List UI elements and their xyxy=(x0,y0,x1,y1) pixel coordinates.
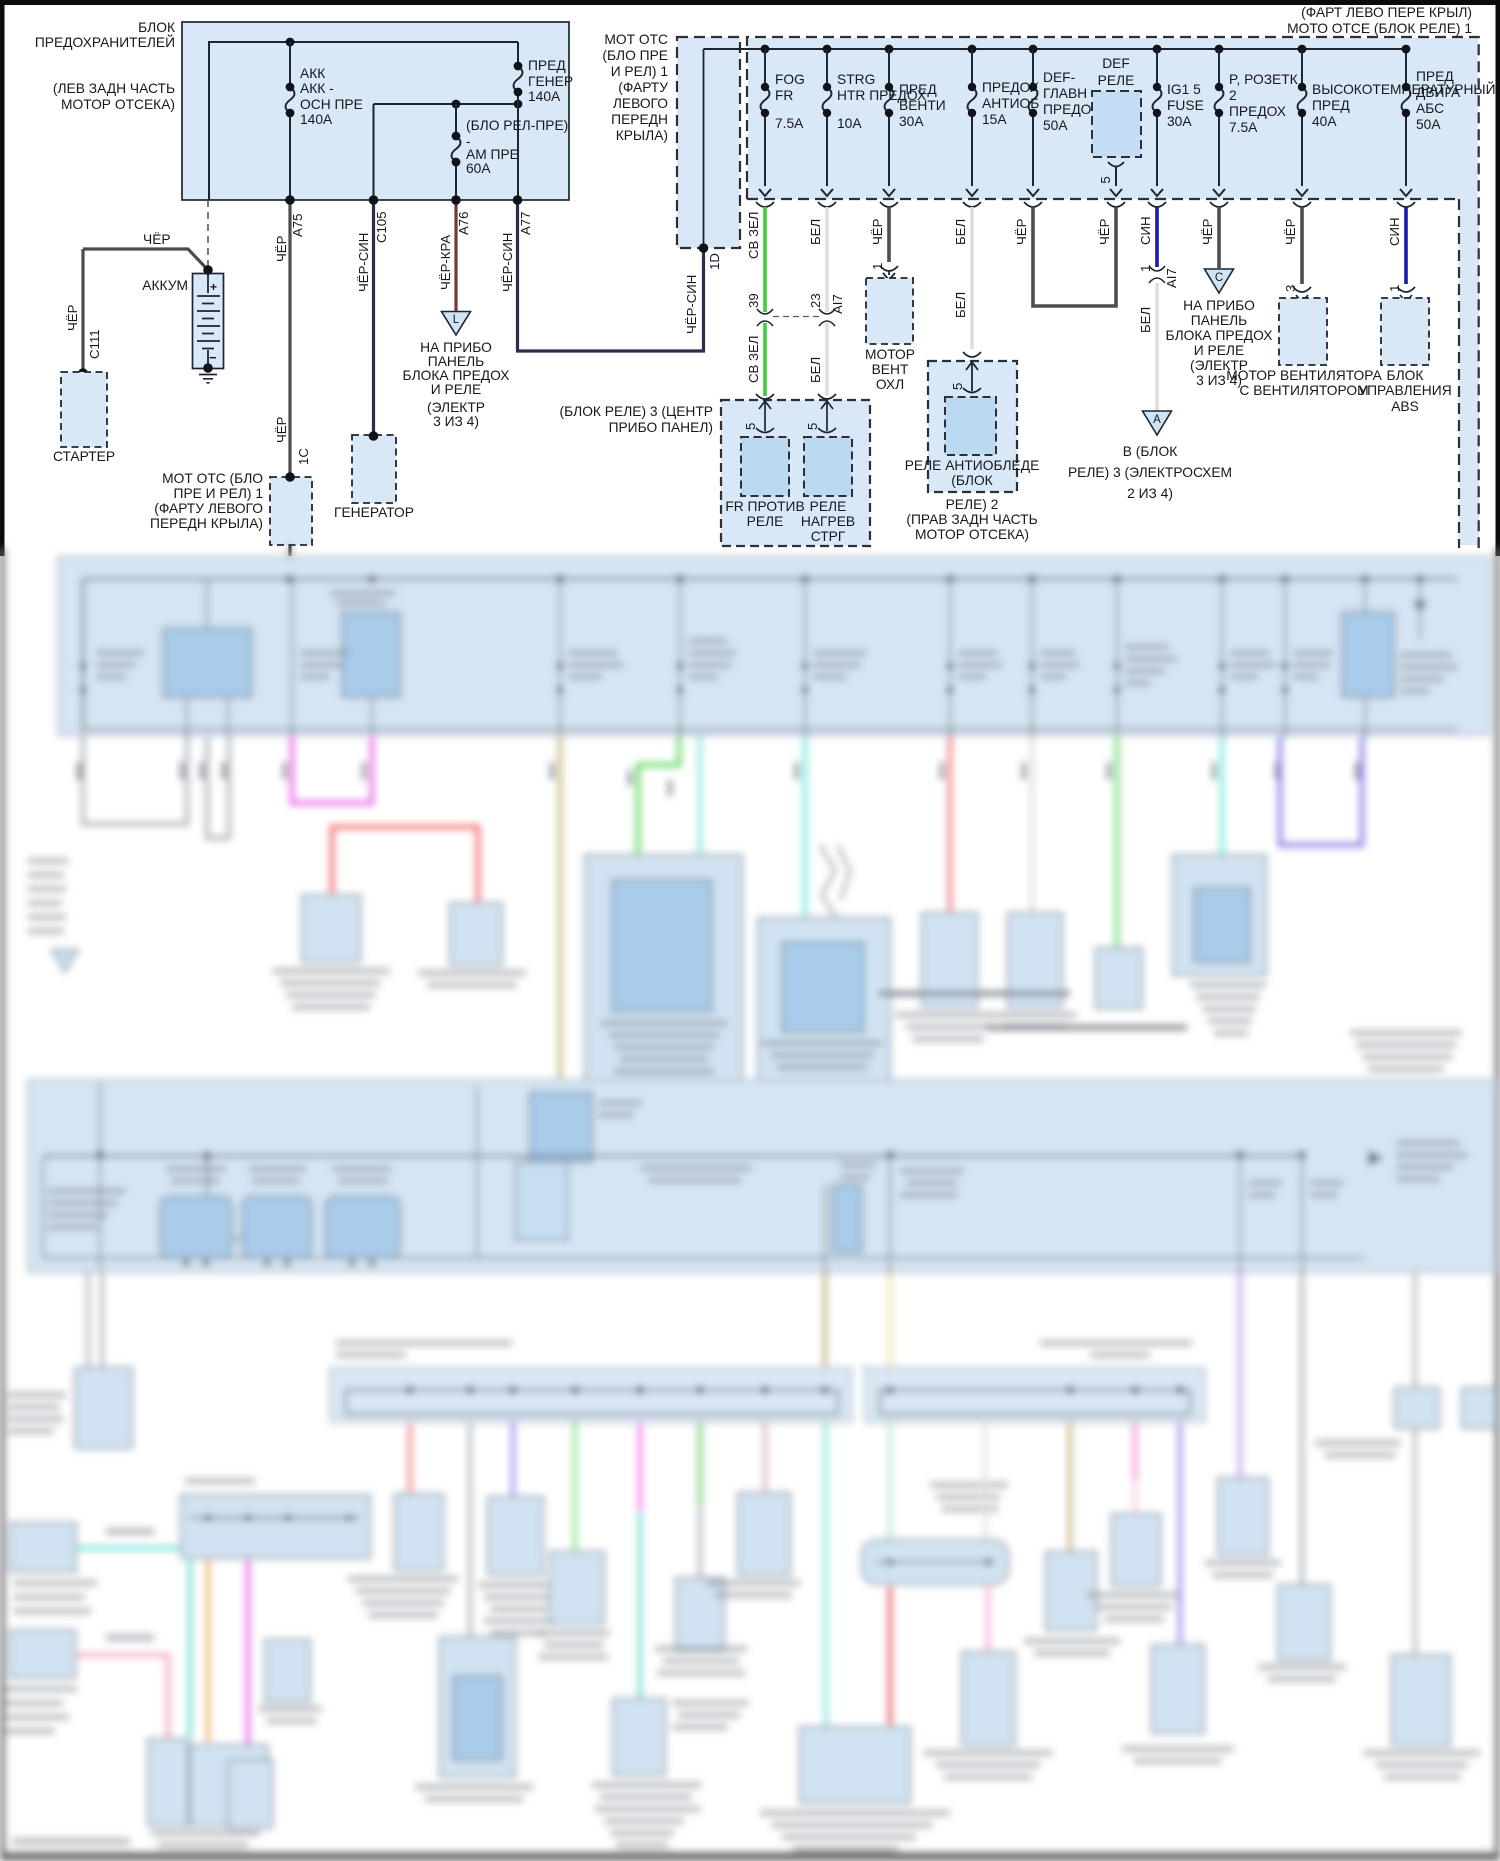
svg-text:ЧЁР-СИН: ЧЁР-СИН xyxy=(684,275,699,334)
svg-text:ЧЁР: ЧЁР xyxy=(1014,218,1029,245)
svg-text:С ВЕНТИЛЯТОРОМ: С ВЕНТИЛЯТОРОМ xyxy=(1239,383,1368,398)
svg-text:ЧЁР-СИН: ЧЁР-СИН xyxy=(500,233,515,292)
svg-text:FOG: FOG xyxy=(775,72,805,87)
svg-text:ПРЕ И РЕЛ) 1: ПРЕ И РЕЛ) 1 xyxy=(174,486,263,501)
svg-text:БЛОКА ПРЕДОХ: БЛОКА ПРЕДОХ xyxy=(1166,328,1273,343)
svg-text:МОТОР: МОТОР xyxy=(865,347,915,362)
svg-text:ЧЁР: ЧЁР xyxy=(870,218,885,245)
svg-text:5: 5 xyxy=(1098,176,1113,183)
svg-text:5: 5 xyxy=(950,383,965,390)
svg-text:НА ПРИБО: НА ПРИБО xyxy=(420,340,492,355)
svg-text:И РЕЛ) 1: И РЕЛ) 1 xyxy=(611,64,668,79)
svg-text:140А: 140А xyxy=(300,112,333,127)
svg-text:ЧЁР: ЧЁР xyxy=(1283,218,1298,245)
svg-text:3 ИЗ 4): 3 ИЗ 4) xyxy=(433,414,479,429)
svg-text:ПЕРЕДН: ПЕРЕДН xyxy=(611,112,668,127)
svg-text:СТАРТЕР: СТАРТЕР xyxy=(53,449,115,464)
svg-text:ПРЕД: ПРЕД xyxy=(1312,98,1350,113)
svg-text:(БЛО РЕЛ-ПРЕ): (БЛО РЕЛ-ПРЕ) xyxy=(466,118,568,133)
svg-text:ВЕНТИ: ВЕНТИ xyxy=(899,98,946,113)
svg-text:ВЕНТ: ВЕНТ xyxy=(872,362,909,377)
svg-text:ЧЁР-СИН: ЧЁР-СИН xyxy=(356,233,371,292)
svg-text:БЕЛ: БЕЛ xyxy=(808,219,823,245)
svg-text:СВ ЗЕЛ: СВ ЗЕЛ xyxy=(746,336,761,383)
svg-text:МОТОР ОТСЕКА): МОТОР ОТСЕКА) xyxy=(61,97,175,112)
svg-text:FUSE: FUSE xyxy=(1167,98,1204,113)
svg-text:ПРЕДО: ПРЕДО xyxy=(1043,102,1092,117)
svg-text:ПРЕДОХРАНИТЕЛЕЙ: ПРЕДОХРАНИТЕЛЕЙ xyxy=(35,33,175,50)
svg-text:IG1 5: IG1 5 xyxy=(1167,82,1201,97)
svg-text:СВ ЗЕЛ: СВ ЗЕЛ xyxy=(746,212,761,259)
svg-text:БЕЛ: БЕЛ xyxy=(953,292,968,318)
svg-text:39: 39 xyxy=(746,293,761,308)
svg-text:ГЕНЕР: ГЕНЕР xyxy=(528,74,573,89)
svg-text:КРЫЛА): КРЫЛА) xyxy=(616,128,668,143)
svg-text:1C: 1C xyxy=(296,448,311,465)
svg-text:РЕЛЕ АНТИОБЛЕДЕ: РЕЛЕ АНТИОБЛЕДЕ xyxy=(905,458,1040,473)
svg-text:ABS: ABS xyxy=(1391,399,1419,414)
svg-text:3: 3 xyxy=(1283,285,1298,292)
svg-text:15А: 15А xyxy=(982,112,1007,127)
svg-text:50А: 50А xyxy=(1043,118,1068,133)
svg-text:A75: A75 xyxy=(290,214,305,237)
svg-text:МОТ ОТС: МОТ ОТС xyxy=(604,32,668,47)
svg-text:(ФАРТ ЛЕВО ПЕРЕ КРЫЛ): (ФАРТ ЛЕВО ПЕРЕ КРЫЛ) xyxy=(1301,5,1472,20)
svg-text:МОТО ОТСЕ (БЛОК РЕЛЕ) 1: МОТО ОТСЕ (БЛОК РЕЛЕ) 1 xyxy=(1287,21,1472,36)
svg-text:(ФАРТУ ЛЕВОГО: (ФАРТУ ЛЕВОГО xyxy=(154,501,263,516)
svg-text:50А: 50А xyxy=(1416,117,1441,132)
svg-text:30A: 30A xyxy=(1167,114,1192,129)
svg-text:ОСН ПРЕ: ОСН ПРЕ xyxy=(300,97,363,112)
svg-text:7.5А: 7.5А xyxy=(1229,120,1258,135)
svg-text:7.5A: 7.5A xyxy=(775,116,804,131)
svg-text:УПРАВЛЕНИЯ: УПРАВЛЕНИЯ xyxy=(1358,383,1451,398)
svg-text:ЧЁР: ЧЁР xyxy=(1200,218,1215,245)
svg-text:ЧЁР: ЧЁР xyxy=(274,416,289,443)
svg-text:И РЕЛЕ: И РЕЛЕ xyxy=(431,382,481,397)
svg-text:(ПРАВ ЗАДН ЧАСТЬ: (ПРАВ ЗАДН ЧАСТЬ xyxy=(906,512,1037,527)
svg-text:DEF-: DEF- xyxy=(1043,70,1075,85)
svg-text:A77: A77 xyxy=(518,212,533,235)
svg-text:P, РОЗЕТК: P, РОЗЕТК xyxy=(1229,72,1298,87)
svg-text:30А: 30А xyxy=(899,114,924,129)
svg-text:РЕЛЕ: РЕЛЕ xyxy=(810,499,847,514)
svg-text:РЕЛЕ: РЕЛЕ xyxy=(747,514,784,529)
svg-text:РЕЛЕ) 3 (ЭЛЕКТРОСХЕМ: РЕЛЕ) 3 (ЭЛЕКТРОСХЕМ xyxy=(1068,465,1232,480)
svg-text:1: 1 xyxy=(1387,285,1402,292)
svg-text:ЧЁР: ЧЁР xyxy=(1097,218,1112,245)
svg-text:2 ИЗ 4): 2 ИЗ 4) xyxy=(1127,486,1173,501)
svg-text:В (БЛОК: В (БЛОК xyxy=(1123,444,1178,459)
svg-text:(БЛОК: (БЛОК xyxy=(951,473,992,488)
svg-text:СИН: СИН xyxy=(1138,216,1153,245)
svg-text:БЕЛ: БЕЛ xyxy=(1138,307,1153,333)
svg-text:БЕЛ: БЕЛ xyxy=(953,219,968,245)
svg-text:БЕЛ: БЕЛ xyxy=(808,357,823,383)
svg-text:+: + xyxy=(210,280,217,294)
svg-text:ПРЕД: ПРЕД xyxy=(1416,69,1454,84)
svg-text:40А: 40А xyxy=(1312,114,1337,129)
svg-text:АКК -: АКК - xyxy=(300,81,334,96)
svg-text:2: 2 xyxy=(1229,88,1237,103)
svg-text:ПАНЕЛЬ: ПАНЕЛЬ xyxy=(428,354,484,369)
svg-text:(ЛЕВ ЗАДН ЧАСТЬ: (ЛЕВ ЗАДН ЧАСТЬ xyxy=(53,81,175,96)
svg-text:СИН: СИН xyxy=(1387,217,1402,246)
svg-text:ЧЁР: ЧЁР xyxy=(274,235,289,262)
svg-text:БЛОКА ПРЕДОХ: БЛОКА ПРЕДОХ xyxy=(403,368,510,383)
svg-text:НАГРЕВ: НАГРЕВ xyxy=(801,514,855,529)
svg-text:DEF: DEF xyxy=(1102,56,1130,71)
svg-text:ПРЕД: ПРЕД xyxy=(899,82,937,97)
svg-text:РЕЛЕ: РЕЛЕ xyxy=(1098,73,1135,88)
svg-text:23: 23 xyxy=(808,293,823,308)
svg-text:STRG: STRG xyxy=(837,72,875,87)
svg-text:ЛЕВОГО: ЛЕВОГО xyxy=(613,96,668,111)
svg-text:МОТОР ОТСЕКА): МОТОР ОТСЕКА) xyxy=(915,527,1029,542)
svg-text:НА ПРИБО: НА ПРИБО xyxy=(1183,298,1255,313)
svg-text:ПРИБО ПАНЕЛ): ПРИБО ПАНЕЛ) xyxy=(609,420,713,435)
svg-text:140А: 140А xyxy=(528,89,561,104)
svg-text:АКК: АКК xyxy=(300,66,325,81)
svg-text:ПАНЕЛЬ: ПАНЕЛЬ xyxy=(1191,313,1247,328)
svg-text:ПЕРЕДН КРЫЛА): ПЕРЕДН КРЫЛА) xyxy=(150,516,263,531)
svg-text:ПРЕДОХ: ПРЕДОХ xyxy=(1229,104,1286,119)
svg-text:МОТОР ВЕНТИЛЯТОРА: МОТОР ВЕНТИЛЯТОРА xyxy=(1226,368,1382,383)
svg-text:C: C xyxy=(1215,272,1223,284)
svg-text:ПРЕД: ПРЕД xyxy=(528,58,566,73)
svg-text:ЧЁР: ЧЁР xyxy=(143,231,171,247)
svg-text:ДВИГА: ДВИГА xyxy=(1416,85,1461,100)
svg-text:(БЛО ПРЕ: (БЛО ПРЕ xyxy=(602,48,668,63)
svg-text:L: L xyxy=(453,314,460,326)
svg-text:БЛОК: БЛОК xyxy=(138,20,175,35)
svg-text:A76: A76 xyxy=(456,212,471,235)
svg-text:ГЛАВН: ГЛАВН xyxy=(1043,86,1087,101)
svg-text:FR: FR xyxy=(775,88,793,103)
svg-text:АККУМ: АККУМ xyxy=(142,278,188,293)
svg-text:1D: 1D xyxy=(707,253,722,270)
svg-text:ЧЁР-КРА: ЧЁР-КРА xyxy=(438,235,453,290)
svg-text:A: A xyxy=(1153,414,1161,426)
svg-text:БЛОК: БЛОК xyxy=(1387,368,1424,383)
svg-text:5: 5 xyxy=(743,423,758,430)
svg-text:AI7: AI7 xyxy=(1164,268,1179,288)
svg-text:АБС: АБС xyxy=(1416,101,1444,116)
svg-text:МОТ ОТС (БЛО: МОТ ОТС (БЛО xyxy=(162,471,263,486)
svg-text:АМ ПРЕ: АМ ПРЕ xyxy=(466,147,519,162)
svg-text:(ФАРТУ: (ФАРТУ xyxy=(618,80,668,95)
svg-text:60А: 60А xyxy=(466,161,491,176)
svg-text:C105: C105 xyxy=(374,211,389,243)
svg-text:ГЕНЕРАТОР: ГЕНЕРАТОР xyxy=(334,505,414,520)
svg-text:10A: 10A xyxy=(837,116,862,131)
svg-text:И РЕЛЕ: И РЕЛЕ xyxy=(1194,343,1244,358)
svg-text:FR ПРОТИВ: FR ПРОТИВ xyxy=(725,499,804,514)
svg-text:(ЭЛЕКТР: (ЭЛЕКТР xyxy=(427,400,485,415)
svg-text:C111: C111 xyxy=(87,329,102,359)
svg-text:5: 5 xyxy=(805,423,820,430)
svg-text:(БЛОК РЕЛЕ) 3 (ЦЕНТР: (БЛОК РЕЛЕ) 3 (ЦЕНТР xyxy=(560,404,714,419)
svg-text:−: − xyxy=(209,350,217,365)
svg-text:РЕЛЕ) 2: РЕЛЕ) 2 xyxy=(946,497,999,512)
svg-text:ЧЁР: ЧЁР xyxy=(65,304,80,331)
svg-text:СТРГ: СТРГ xyxy=(811,529,846,544)
svg-text:ОХЛ: ОХЛ xyxy=(876,377,904,392)
